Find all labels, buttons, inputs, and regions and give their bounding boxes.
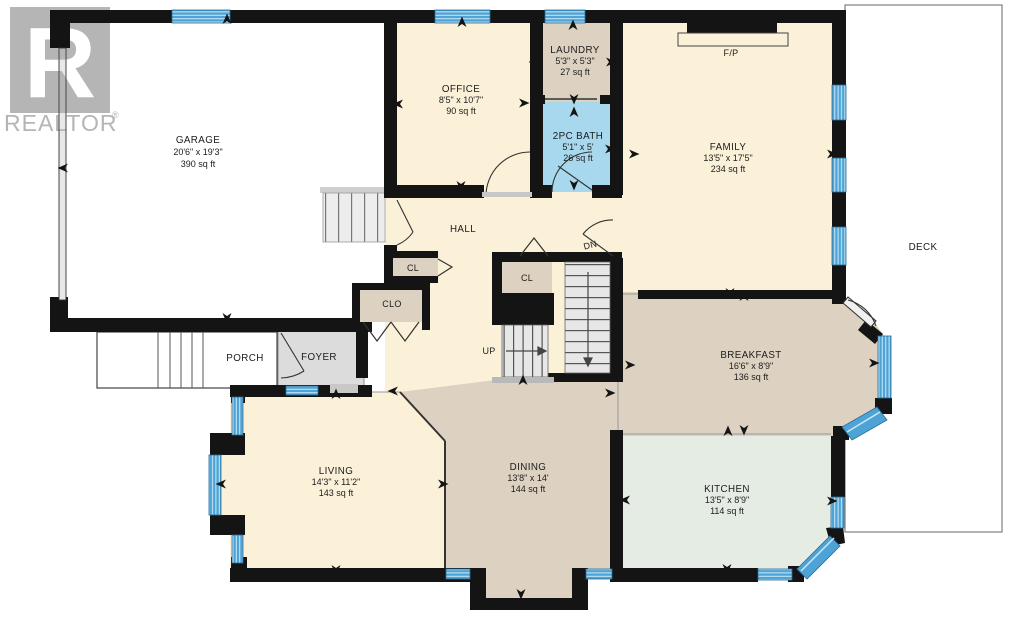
office-door-threshold [482,192,532,197]
floor-plan-page: GARAGE 20'6" x 19'3" 390 sq ft OFFICE 8'… [0,0,1023,629]
office-label: OFFICE [442,84,480,95]
floor-plan-drawing: GARAGE 20'6" x 19'3" 390 sq ft OFFICE 8'… [0,0,1023,629]
porch-label: PORCH [226,353,263,364]
deck-area [845,5,1002,532]
window [832,227,846,265]
hall-label: HALL [450,224,476,235]
up-label: UP [482,346,495,356]
bath-dims: 5'1" x 5' [562,142,593,152]
living-dims: 14'3" x 11'2" [312,477,361,487]
laundry-label: LAUNDRY [550,45,600,56]
window [172,10,230,23]
window [832,158,846,192]
window [832,85,846,120]
kitchen-label: KITCHEN [704,484,750,495]
realtor-brand-text: REALTOR [4,110,118,136]
garage-area [62,16,385,322]
living-label: LIVING [319,466,354,477]
realtor-logo-r: R [24,7,96,119]
registered-mark: ® [112,110,119,120]
window [286,386,318,395]
family-area-label: 234 sq ft [711,164,746,174]
breakfast-area-label: 136 sq ft [734,372,769,382]
window [758,569,792,580]
clo-label: CLO [382,299,401,309]
garage-dims: 20'6" x 19'3" [173,147,222,157]
cl-stairs-label: CL [521,273,533,283]
office-area-label: 90 sq ft [446,106,476,116]
breakfast-dims: 16'6" x 8'9" [729,361,773,371]
living-area-label: 143 sq ft [319,488,354,498]
garage-steps [320,187,388,242]
family-label: FAMILY [710,142,747,153]
laundry-dims: 5'3" x 5'3" [555,56,594,66]
window [446,569,470,579]
window [545,10,585,23]
dining-dims: 13'8" x 14' [507,473,548,483]
laundry-area-label: 27 sq ft [560,67,590,77]
window [232,397,243,435]
breakfast-label: BREAKFAST [720,350,781,361]
deck-label: DECK [909,242,938,253]
garage-label: GARAGE [176,135,220,146]
bath-area-label: 26 sq ft [563,153,593,163]
fireplace-label: F/P [724,48,739,58]
window [878,336,891,398]
family-dims: 13'5" x 17'5" [703,153,752,163]
bath-label: 2PC BATH [553,131,603,142]
window [586,569,612,579]
dining-area-label: 144 sq ft [511,484,546,494]
window [232,535,243,563]
kitchen-area-label: 114 sq ft [710,506,744,516]
foyer-threshold [330,384,358,393]
garage-area-label: 390 sq ft [181,159,216,169]
dining-label: DINING [510,462,547,473]
realtor-watermark: R REALTOR ® [4,7,119,136]
kitchen-dims: 13'5" x 8'9" [705,495,749,505]
cl-hall-label: CL [407,263,419,273]
office-dims: 8'5" x 10'7" [439,95,483,105]
foyer-label: FOYER [301,352,337,363]
